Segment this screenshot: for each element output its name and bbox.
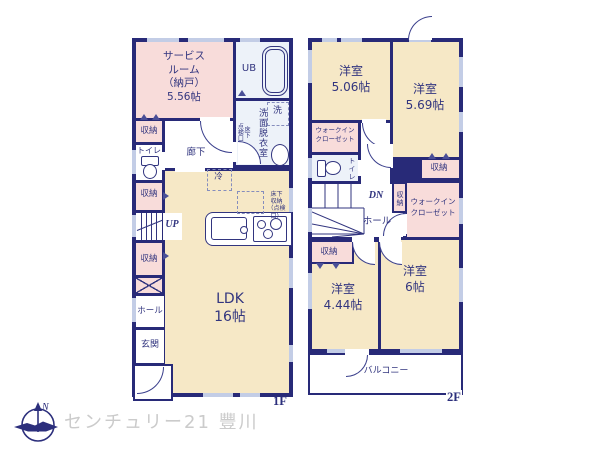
closet-flap-icon <box>238 90 246 96</box>
door-opening <box>162 152 165 170</box>
floor-label-1f: 1F <box>273 394 287 409</box>
floorplan-canvas: サービス ルーム （納戸） 5.56帖 UB 洗 洗面脱衣室 床下 点検口 収納… <box>0 0 600 450</box>
burner-icon <box>263 229 273 239</box>
closet-flap-icon <box>316 263 324 269</box>
burner-icon <box>257 220 266 229</box>
window <box>289 345 293 362</box>
label-closet: 収納 <box>136 254 162 265</box>
door-arc-2f-top <box>408 16 432 40</box>
room-label-444: 洋室 4.44帖 <box>316 282 370 313</box>
label-stairs-down: DN <box>366 189 386 202</box>
room-label-toilet-2f: トイレ <box>344 157 355 181</box>
room-label-569: 洋室 5.69帖 <box>400 82 450 113</box>
compass-north-icon: N <box>12 398 64 446</box>
label-stairs-up: UP <box>163 218 181 231</box>
window <box>308 158 312 178</box>
closet-flap-icon <box>140 114 148 120</box>
window <box>308 273 312 309</box>
window <box>240 393 260 397</box>
burner-icon <box>270 218 282 230</box>
label-corridor: 廊下 <box>182 147 210 159</box>
stair-step <box>141 213 142 240</box>
underfloor-storage-box <box>237 191 264 214</box>
window <box>147 38 179 42</box>
room-label-ldk: LDK 16帖 <box>195 290 265 326</box>
window <box>240 38 260 42</box>
window <box>203 393 233 397</box>
toilet-bowl-icon <box>325 161 341 175</box>
window <box>400 349 442 353</box>
label-wic-right: ウォークイン クローゼット <box>407 196 459 219</box>
label-balcony: バルコニー <box>358 366 414 378</box>
toilet-bowl-icon <box>143 164 157 179</box>
stair-step <box>156 213 157 240</box>
window <box>459 112 463 132</box>
compass-n-label: N <box>41 402 50 413</box>
hatch-x-box <box>136 278 162 293</box>
label-closet-mid: 収納 <box>391 187 403 211</box>
bathtub-icon <box>262 46 288 96</box>
closet-flap-icon <box>163 192 169 200</box>
window <box>459 268 463 302</box>
stairs-2f-icon <box>312 184 367 237</box>
closet-flap-icon <box>163 252 169 260</box>
room-label-service: サービス ルーム （納戸） 5.56帖 <box>146 50 222 105</box>
stair-step <box>151 213 152 240</box>
closet-flap-icon <box>332 263 340 269</box>
label-hall-2f: ホール <box>356 216 398 228</box>
company-watermark: センチュリー21 豐川 <box>64 408 259 434</box>
room-label-washroom: 洗面脱衣室 <box>252 103 266 163</box>
label-entrance: 玄関 <box>138 340 162 352</box>
label-closet: 収納 <box>136 189 162 200</box>
closet-flap-icon <box>152 114 160 120</box>
room-label-6: 洋室 6帖 <box>392 264 438 295</box>
window <box>459 198 463 224</box>
window <box>308 50 312 83</box>
room-label-506: 洋室 5.06帖 <box>326 64 376 95</box>
window <box>188 38 224 42</box>
label-underfloor-storage: 床下 収納 （点検口） <box>263 191 290 220</box>
label-wic-left: ウォークイン クローゼット <box>312 126 358 144</box>
window <box>289 258 293 288</box>
door-opening <box>358 160 361 176</box>
label-washer: 洗 <box>269 106 286 118</box>
window <box>341 38 362 42</box>
floor-label-2f: 2F <box>446 390 462 405</box>
closet-flap-icon <box>442 153 450 159</box>
door-opening <box>175 167 205 172</box>
faucet-icon <box>240 226 248 234</box>
window <box>132 215 136 237</box>
label-closet-bottom: 収納 <box>315 247 343 258</box>
room-label-ub: UB <box>238 62 260 75</box>
window <box>322 38 337 42</box>
window <box>459 57 463 87</box>
room-label-toilet: トイレ <box>136 146 162 156</box>
label-closet: 収納 <box>136 126 162 137</box>
closet-flap-icon <box>428 153 436 159</box>
label-fridge: 冷 <box>208 172 229 183</box>
label-hall: ホール <box>136 306 164 317</box>
stairs-1f <box>136 213 162 240</box>
label-underfloor-hatch: 床下 点検口 <box>235 110 249 154</box>
label-closet-top: 収納 <box>425 163 453 174</box>
sink-icon <box>271 144 289 166</box>
